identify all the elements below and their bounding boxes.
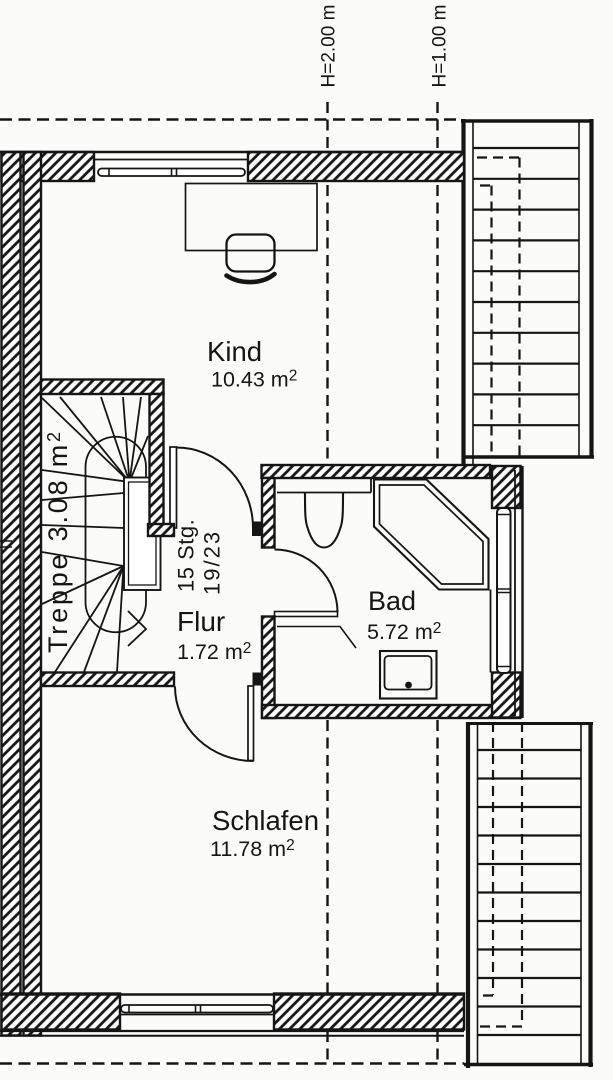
svg-text:11.78 m2: 11.78 m2 xyxy=(210,837,295,861)
svg-text:H=2.00 m: H=2.00 m xyxy=(319,5,340,88)
svg-text:19/23: 19/23 xyxy=(200,530,225,595)
svg-text:Treppe 3.08 m2: Treppe 3.08 m2 xyxy=(43,429,73,653)
svg-text:1.72 m2: 1.72 m2 xyxy=(177,640,251,664)
svg-text:Schlafen: Schlafen xyxy=(212,805,319,836)
svg-text:10.43 m2: 10.43 m2 xyxy=(211,368,297,392)
svg-text:Kind: Kind xyxy=(207,336,262,367)
svg-text:Bad: Bad xyxy=(368,586,416,616)
svg-text:15 Stg.: 15 Stg. xyxy=(174,519,199,592)
svg-text:5.72 m2: 5.72 m2 xyxy=(367,620,441,644)
svg-text:H=1.00 m: H=1.00 m xyxy=(430,5,451,88)
svg-text:Flur: Flur xyxy=(177,606,225,637)
